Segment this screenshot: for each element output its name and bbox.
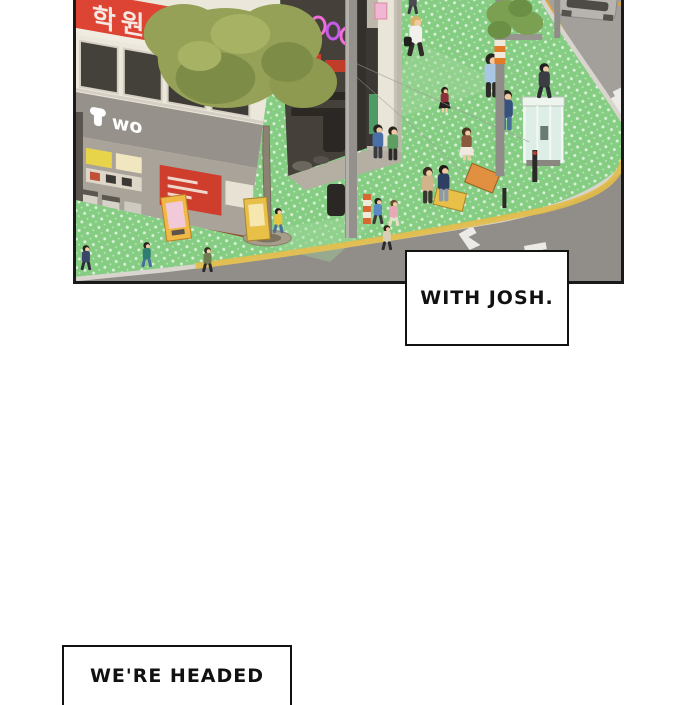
speech-text: WE'RE HEADED: [90, 667, 264, 686]
speech-box-were-headed: WE'RE HEADED: [62, 645, 292, 705]
striped-bollard: [363, 194, 371, 224]
traffic-light: [327, 184, 345, 216]
speech-box-with-josh: WITH JOSH.: [405, 250, 569, 346]
phone-booth: [522, 97, 564, 166]
telecom-logo-icon: [94, 111, 102, 126]
traffic-light: [323, 112, 345, 152]
pink-sign: [375, 3, 387, 19]
speech-text: WITH JOSH.: [420, 289, 554, 308]
street-scene: 학원 wo: [76, 0, 621, 281]
comic-panel: 학원 wo: [73, 0, 624, 284]
